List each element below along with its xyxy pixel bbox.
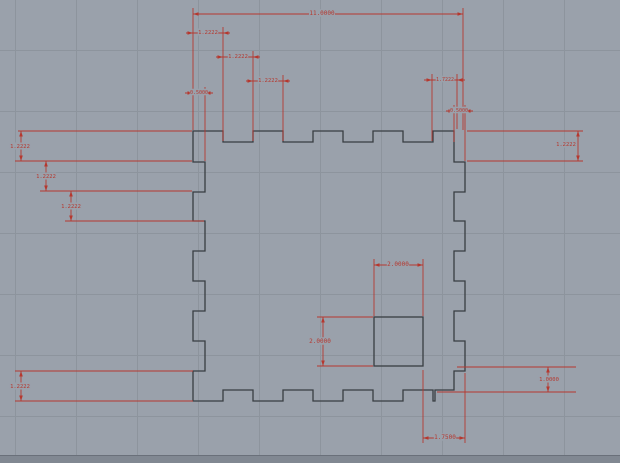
dimension-label: 1.2222 xyxy=(36,174,56,180)
dimension-label: 2.0000 xyxy=(387,261,409,268)
dimension-label: 1.2222 xyxy=(556,142,576,148)
dimension-label: 0.5000 xyxy=(190,90,208,96)
cad-drawing-area[interactable]: 11.00001.22221.22221.22220.50001.72220.5… xyxy=(0,0,620,463)
dimension-label: 0.5000 xyxy=(450,108,468,114)
dimension-label: 2.0000 xyxy=(309,338,331,345)
dimension-label: 1.2222 xyxy=(228,54,248,60)
dimension-label: 1.2222 xyxy=(258,78,278,84)
dimension-label: 1.7222 xyxy=(436,77,454,83)
cad-canvas[interactable]: 11.00001.22221.22221.22220.50001.72220.5… xyxy=(0,0,620,463)
dimension-label: 1.0000 xyxy=(539,377,559,383)
canvas-bottom-edge xyxy=(0,455,620,463)
dimension-label: 1.2222 xyxy=(10,384,30,390)
canvas-background xyxy=(0,0,620,463)
dimension-label: 11.0000 xyxy=(309,10,335,17)
dimension-label: 1.2222 xyxy=(198,30,218,36)
dimension-label: 1.2222 xyxy=(61,204,81,210)
dimension-label: 1.2222 xyxy=(10,144,30,150)
dimension-label: 1.7500 xyxy=(434,434,456,441)
